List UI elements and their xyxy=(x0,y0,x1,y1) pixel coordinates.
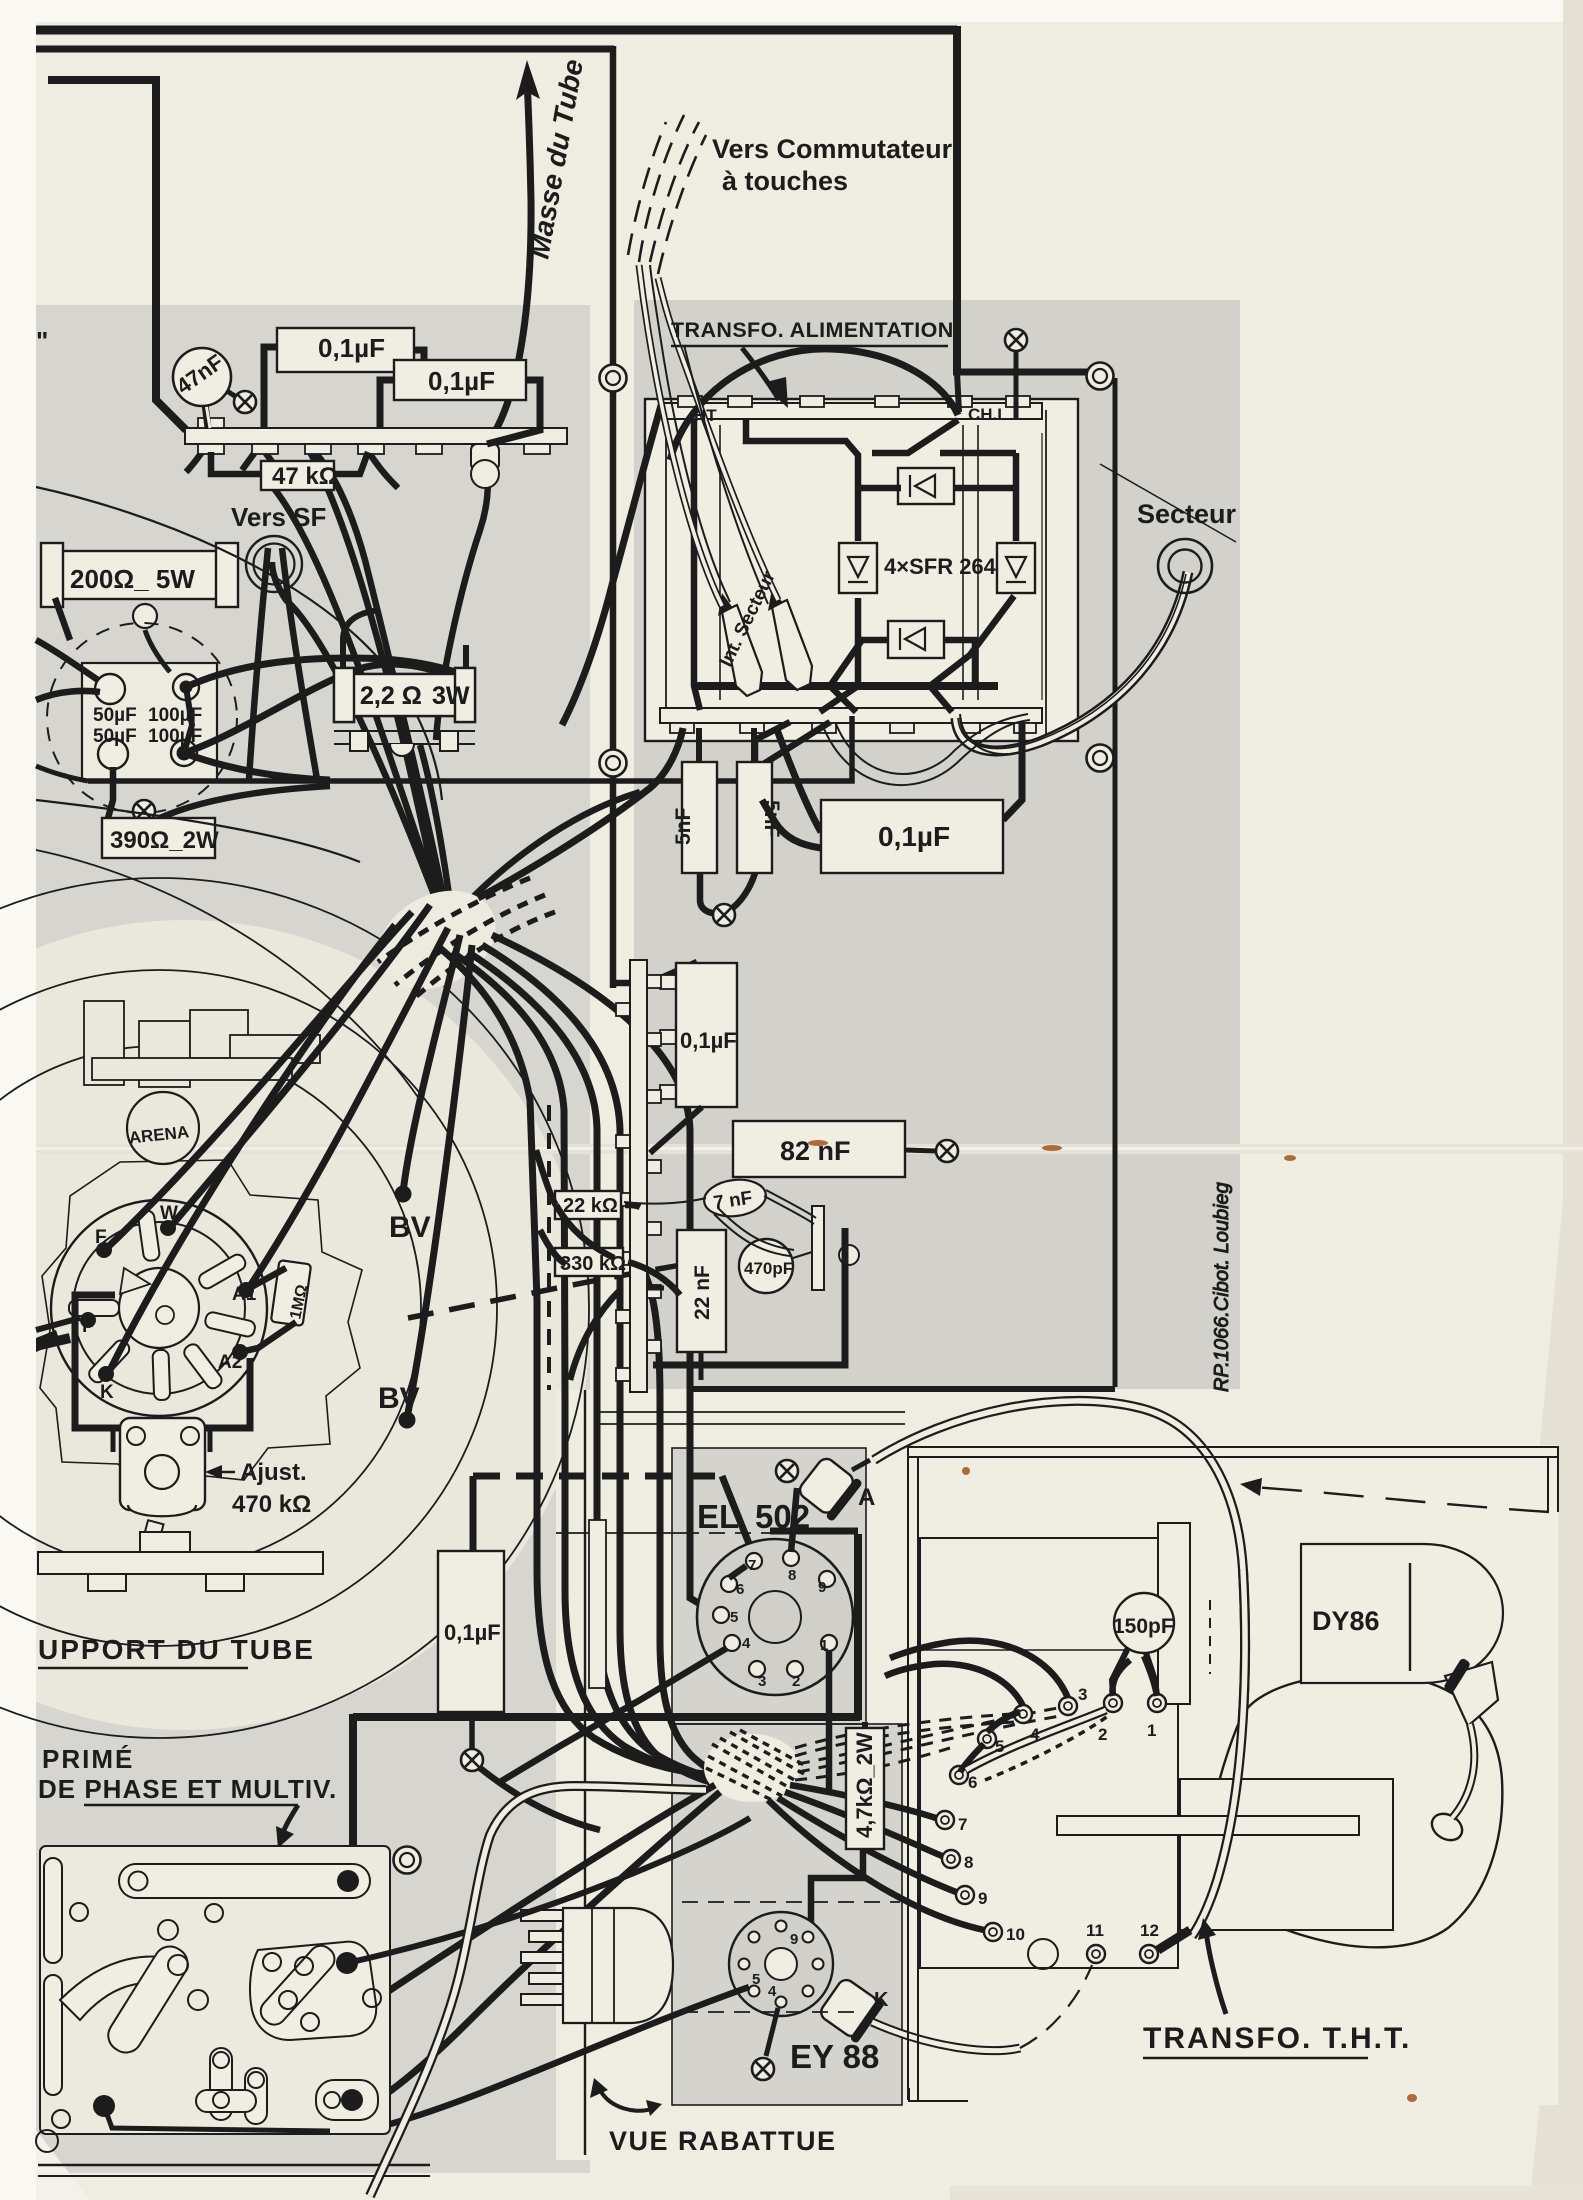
svg-text:4×SFR 264: 4×SFR 264 xyxy=(884,554,997,579)
svg-text:5: 5 xyxy=(995,1737,1004,1756)
svg-text:22 nF: 22 nF xyxy=(691,1265,714,1320)
svg-text:BV: BV xyxy=(389,1211,431,1244)
svg-text:47 kΩ: 47 kΩ xyxy=(272,463,338,490)
svg-text:100µF: 100µF xyxy=(148,705,202,726)
svg-text:4: 4 xyxy=(1030,1725,1040,1744)
svg-text:RP.1066.Cibot. Loubieg: RP.1066.Cibot. Loubieg xyxy=(1211,1182,1233,1392)
svg-text:EL: EL xyxy=(697,1498,739,1535)
svg-text:7: 7 xyxy=(748,1557,756,1574)
svg-text:50µF: 50µF xyxy=(93,726,137,747)
svg-text:100µF: 100µF xyxy=(148,726,202,747)
svg-text:PRIMÉ: PRIMÉ xyxy=(42,1744,134,1774)
svg-text:7: 7 xyxy=(958,1815,967,1834)
svg-text:0,1µF: 0,1µF xyxy=(428,366,495,396)
svg-text:F: F xyxy=(95,1227,107,1248)
svg-text:HT: HT xyxy=(694,406,717,425)
svg-text:3: 3 xyxy=(758,1673,766,1690)
svg-text:502: 502 xyxy=(755,1498,810,1535)
svg-text:9: 9 xyxy=(818,1579,826,1596)
svg-text:K: K xyxy=(874,1989,889,2011)
svg-text:3: 3 xyxy=(1078,1685,1087,1704)
svg-text:390Ω_2W: 390Ω_2W xyxy=(110,827,219,854)
svg-text:Vers SF: Vers SF xyxy=(231,502,326,532)
svg-text:1: 1 xyxy=(1147,1721,1156,1740)
svg-text:à touches: à touches xyxy=(722,166,848,196)
svg-text:9: 9 xyxy=(978,1889,987,1908)
svg-text:5nF: 5nF xyxy=(760,800,783,838)
svg-text:Ajust.: Ajust. xyxy=(240,1459,307,1486)
svg-text:TRANSFO. ALIMENTATION: TRANSFO. ALIMENTATION xyxy=(671,318,954,342)
svg-text:VUE RABATTUE: VUE RABATTUE xyxy=(609,2126,837,2156)
svg-text:9: 9 xyxy=(790,1931,798,1948)
svg-text:150pF: 150pF xyxy=(1113,1615,1174,1638)
svg-text:470pF: 470pF xyxy=(744,1259,793,1278)
svg-text:4,7kΩ_2W: 4,7kΩ_2W xyxy=(852,1732,877,1838)
svg-text:": " xyxy=(36,326,48,356)
svg-text:5nF: 5nF xyxy=(672,807,695,845)
svg-text:BV: BV xyxy=(378,1382,420,1415)
svg-text:3W: 3W xyxy=(432,682,470,710)
svg-text:11: 11 xyxy=(1086,1921,1104,1940)
svg-text:0,1µF: 0,1µF xyxy=(878,821,950,852)
svg-text:TRANSFO. T.H.T.: TRANSFO. T.H.T. xyxy=(1143,2022,1411,2055)
svg-text:A1: A1 xyxy=(232,1284,257,1305)
svg-text:0,1µF: 0,1µF xyxy=(318,333,385,363)
svg-text:12: 12 xyxy=(1140,1921,1159,1940)
svg-text:0,1µF: 0,1µF xyxy=(444,1620,501,1645)
svg-text:1: 1 xyxy=(820,1637,828,1654)
svg-text:5: 5 xyxy=(752,1971,760,1988)
svg-text:10: 10 xyxy=(1006,1925,1025,1944)
svg-text:A: A xyxy=(858,1484,875,1511)
svg-text:8: 8 xyxy=(964,1853,973,1872)
svg-text:6: 6 xyxy=(968,1773,977,1792)
svg-text:50µF: 50µF xyxy=(93,705,137,726)
svg-text:W: W xyxy=(160,1203,178,1224)
svg-text:470 kΩ: 470 kΩ xyxy=(232,1491,311,1518)
svg-text:5: 5 xyxy=(730,1609,738,1626)
svg-text:330 kΩ: 330 kΩ xyxy=(560,1253,626,1275)
svg-text:0,1µF: 0,1µF xyxy=(680,1028,737,1053)
svg-text:EY 88: EY 88 xyxy=(790,2038,879,2075)
svg-text:DE PHASE ET MULTIV.: DE PHASE ET MULTIV. xyxy=(38,1774,337,1804)
svg-text:Vers Commutateur: Vers Commutateur xyxy=(712,134,953,164)
svg-text:2,2 Ω: 2,2 Ω xyxy=(360,682,422,710)
svg-text:A2: A2 xyxy=(218,1352,242,1373)
svg-text:2: 2 xyxy=(1098,1725,1107,1744)
svg-text:K: K xyxy=(100,1382,114,1403)
svg-text:DY86: DY86 xyxy=(1312,1606,1380,1636)
svg-text:4: 4 xyxy=(768,1983,777,2000)
svg-text:2: 2 xyxy=(792,1673,800,1690)
svg-text:Secteur: Secteur xyxy=(1137,499,1237,529)
svg-text:22 kΩ: 22 kΩ xyxy=(563,1195,618,1217)
svg-text:UPPORT DU TUBE: UPPORT DU TUBE xyxy=(38,1634,315,1665)
svg-text:4: 4 xyxy=(742,1635,751,1652)
svg-text:F: F xyxy=(82,1316,94,1337)
svg-text:200Ω_ 5W: 200Ω_ 5W xyxy=(70,564,195,594)
svg-text:6: 6 xyxy=(736,1581,744,1598)
svg-text:CH.L: CH.L xyxy=(968,405,1008,424)
svg-text:8: 8 xyxy=(788,1567,796,1584)
